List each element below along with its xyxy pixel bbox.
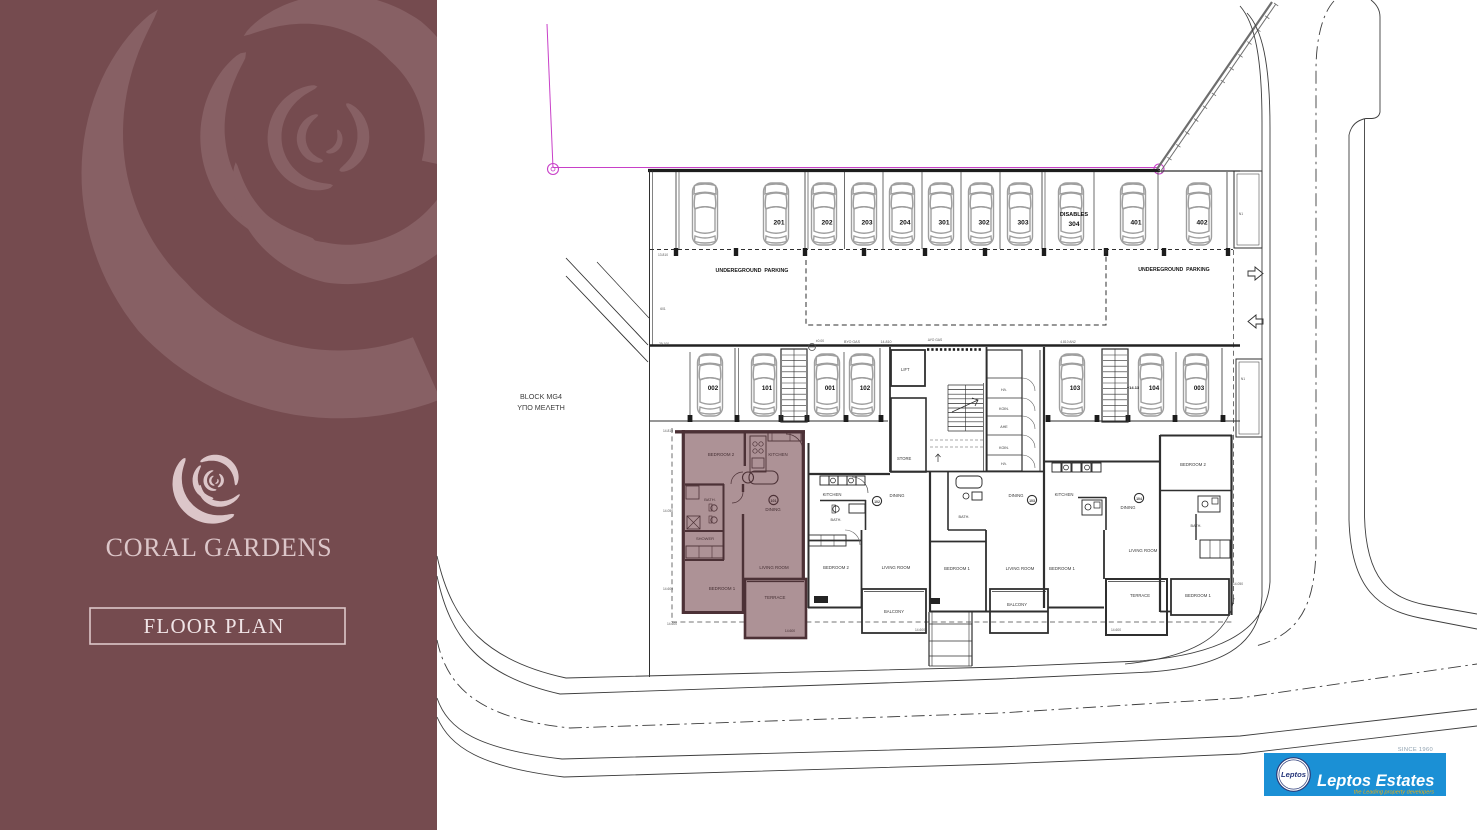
svg-text:ΑΗΕ: ΑΗΕ xyxy=(1000,425,1008,429)
svg-text:+14.13: +14.13 xyxy=(1127,385,1140,390)
svg-text:DINING: DINING xyxy=(1120,505,1136,510)
svg-text:101: 101 xyxy=(771,499,777,503)
svg-text:SHOWER: SHOWER xyxy=(696,536,714,541)
svg-text:UNDEREGROUND PARKING: UNDEREGROUND PARKING xyxy=(716,268,789,274)
svg-text:DINING: DINING xyxy=(765,507,781,512)
svg-text:303: 303 xyxy=(1017,220,1028,227)
svg-text:BEDROOM 2: BEDROOM 2 xyxy=(708,452,735,457)
svg-text:301: 301 xyxy=(938,220,949,227)
svg-text:CORAL GARDENS: CORAL GARDENS xyxy=(106,533,333,562)
svg-text:ΚΟΙΝ.: ΚΟΙΝ. xyxy=(999,407,1009,411)
svg-text:FLOOR PLAN: FLOOR PLAN xyxy=(144,614,285,638)
svg-text:101: 101 xyxy=(762,385,773,392)
svg-text:ΚΟΙΝ.: ΚΟΙΝ. xyxy=(999,446,1009,450)
svg-text:KITCHEN: KITCHEN xyxy=(1055,492,1074,497)
svg-text:SINCE 1960: SINCE 1960 xyxy=(1398,747,1433,753)
svg-text:14.600: 14.600 xyxy=(667,622,677,626)
svg-text:BEDROOM 1: BEDROOM 1 xyxy=(1185,593,1211,598)
svg-text:KITCHEN: KITCHEN xyxy=(768,452,787,457)
svg-text:003: 003 xyxy=(1194,385,1205,392)
svg-text:203: 203 xyxy=(861,220,872,227)
svg-text:402: 402 xyxy=(1196,220,1207,227)
svg-text:103: 103 xyxy=(1070,385,1081,392)
svg-text:BALCONY: BALCONY xyxy=(1007,602,1027,607)
svg-text:DISABLES: DISABLES xyxy=(1060,212,1089,218)
svg-text:204: 204 xyxy=(899,220,910,227)
svg-text:102: 102 xyxy=(860,385,871,392)
svg-text:TERRACE: TERRACE xyxy=(1130,593,1150,598)
svg-text:BATH.: BATH. xyxy=(959,515,970,519)
svg-text:104: 104 xyxy=(1149,385,1160,392)
svg-text:002: 002 xyxy=(708,385,719,392)
svg-text:DINING: DINING xyxy=(1008,493,1024,498)
svg-text:Leptos: Leptos xyxy=(1281,770,1306,779)
svg-text:BATH.: BATH. xyxy=(704,497,715,502)
svg-text:202: 202 xyxy=(821,220,832,227)
svg-text:TERRACE: TERRACE xyxy=(765,595,786,600)
svg-text:14.600: 14.600 xyxy=(663,587,673,591)
svg-text:4.810 AN2: 4.810 AN2 xyxy=(1060,340,1076,344)
svg-text:13.810: 13.810 xyxy=(658,253,668,257)
svg-text:103: 103 xyxy=(1029,499,1035,503)
svg-text:LIVING ROOM: LIVING ROOM xyxy=(1006,566,1035,571)
svg-text:UNDEREGROUND PARKING: UNDEREGROUND PARKING xyxy=(1138,267,1209,273)
svg-text:BATH.: BATH. xyxy=(831,518,842,522)
svg-text:29.100: 29.100 xyxy=(659,342,669,346)
svg-text:N1: N1 xyxy=(1241,377,1245,381)
svg-text:ΗΛ.: ΗΛ. xyxy=(1001,462,1007,466)
svg-text:BEDROOM 1: BEDROOM 1 xyxy=(1049,566,1075,571)
svg-text:the Leading property developer: the Leading property developers xyxy=(1354,790,1434,796)
svg-text:N1: N1 xyxy=(1239,212,1243,216)
svg-text:KITCHEN: KITCHEN xyxy=(823,492,842,497)
svg-text:±0.00: ±0.00 xyxy=(816,339,824,343)
svg-text:14.050: 14.050 xyxy=(663,509,673,513)
svg-text:BEDROOM 1: BEDROOM 1 xyxy=(709,586,736,591)
svg-text:LIVING ROOM: LIVING ROOM xyxy=(759,565,789,570)
svg-text:STORE: STORE xyxy=(897,456,912,461)
svg-text:ΔΥΟ GAS: ΔΥΟ GAS xyxy=(928,338,943,342)
svg-text:302: 302 xyxy=(978,220,989,227)
svg-text:BEDROOM 2: BEDROOM 2 xyxy=(823,565,849,570)
svg-text:14.050: 14.050 xyxy=(1233,582,1243,586)
svg-text:14.600: 14.600 xyxy=(785,629,795,633)
svg-text:401: 401 xyxy=(1130,220,1141,227)
svg-text:Leptos Estates: Leptos Estates xyxy=(1317,772,1434,790)
svg-text:14.810: 14.810 xyxy=(663,429,673,433)
svg-text:BALCONY: BALCONY xyxy=(884,609,904,614)
svg-text:BLOCK MG4: BLOCK MG4 xyxy=(520,392,562,401)
svg-text:ΥΠΟ ΜΕΛΕΤΗ: ΥΠΟ ΜΕΛΕΤΗ xyxy=(517,403,565,412)
svg-text:14.600: 14.600 xyxy=(1111,628,1121,632)
svg-text:BEDROOM 2: BEDROOM 2 xyxy=(1180,462,1206,467)
svg-text:102: 102 xyxy=(874,500,880,504)
svg-text:001: 001 xyxy=(825,385,836,392)
svg-text:601: 601 xyxy=(660,307,666,311)
svg-text:ΗΛ.: ΗΛ. xyxy=(1001,388,1007,392)
svg-text:104: 104 xyxy=(1136,497,1142,501)
svg-text:14.810: 14.810 xyxy=(881,340,892,344)
svg-text:14.600: 14.600 xyxy=(915,628,925,632)
svg-text:LIVING ROOM: LIVING ROOM xyxy=(1129,548,1158,553)
svg-text:LIFT: LIFT xyxy=(901,367,910,372)
svg-text:DINING: DINING xyxy=(889,493,905,498)
svg-text:LIVING ROOM: LIVING ROOM xyxy=(882,565,911,570)
svg-text:ΒΥΟ GAS: ΒΥΟ GAS xyxy=(844,340,861,344)
svg-text:BEDROOM 1: BEDROOM 1 xyxy=(944,566,970,571)
svg-text:304: 304 xyxy=(1068,221,1079,228)
svg-text:201: 201 xyxy=(773,220,784,227)
